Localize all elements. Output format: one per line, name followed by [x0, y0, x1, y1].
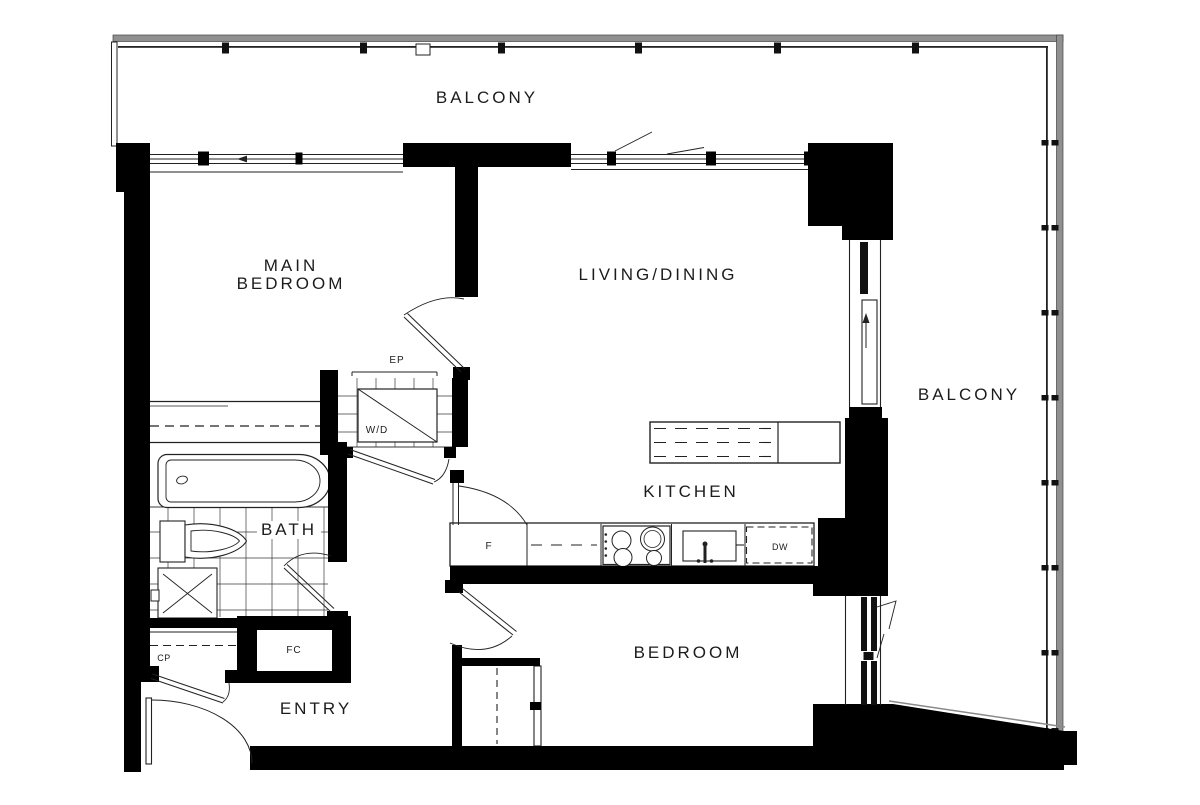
- label-fridge: F: [485, 538, 492, 556]
- main-bedroom-line2: BEDROOM: [237, 274, 346, 293]
- room-label-bath: BATH: [257, 521, 321, 539]
- label-electrical-panel: EP: [389, 352, 404, 370]
- room-label-living-dining: LIVING/DINING: [579, 266, 738, 284]
- kitchen-hall-door: [453, 483, 527, 525]
- room-label-balcony-top: BALCONY: [436, 89, 538, 107]
- balcony-door-swing-mark: [615, 132, 652, 151]
- label-fan-coil: FC: [286, 642, 301, 660]
- living-balcony-slider: [850, 240, 881, 407]
- main-bedroom-closet: [150, 402, 330, 443]
- label-coat-closet: CP: [157, 649, 171, 667]
- bedroom-window-right: [846, 596, 897, 705]
- washer-dryer-unit: [352, 372, 437, 442]
- toilet: [160, 521, 247, 562]
- kitchen-island: [650, 422, 840, 463]
- vanity-sink: [151, 568, 217, 618]
- balcony-end-wall: [112, 42, 118, 146]
- room-label-kitchen: KITCHEN: [643, 483, 739, 501]
- main-bedroom-line1: MAIN: [264, 256, 319, 275]
- kitchen-sink: [683, 531, 736, 563]
- coat-closet-door: [151, 674, 229, 703]
- floor-plan: BALCONY MAINBEDROOM LIVING/DINING BALCON…: [0, 0, 1200, 805]
- casement-swing-mark: [877, 601, 896, 629]
- room-label-balcony-right: BALCONY: [918, 386, 1020, 404]
- bathtub: [158, 455, 330, 508]
- electrical-panel-bracket: [352, 372, 437, 376]
- room-label-entry: ENTRY: [280, 700, 352, 718]
- bath-door: [284, 553, 334, 612]
- cp-closet-lines: [150, 632, 237, 646]
- sink-faucet: [151, 590, 159, 601]
- label-washer-dryer: W/D: [366, 422, 388, 440]
- stove-cooktop: [603, 526, 670, 567]
- bedroom-door: [450, 589, 517, 650]
- label-dishwasher: DW: [772, 538, 788, 556]
- railing-gate-post: [416, 44, 430, 55]
- laundry-closet-door: [348, 450, 449, 485]
- entry-door: [146, 698, 252, 764]
- room-label-bedroom: BEDROOM: [634, 644, 743, 662]
- main-bedroom-door: [404, 298, 465, 372]
- room-label-main-bedroom: MAINBEDROOM: [237, 257, 346, 293]
- faucet: [703, 542, 708, 547]
